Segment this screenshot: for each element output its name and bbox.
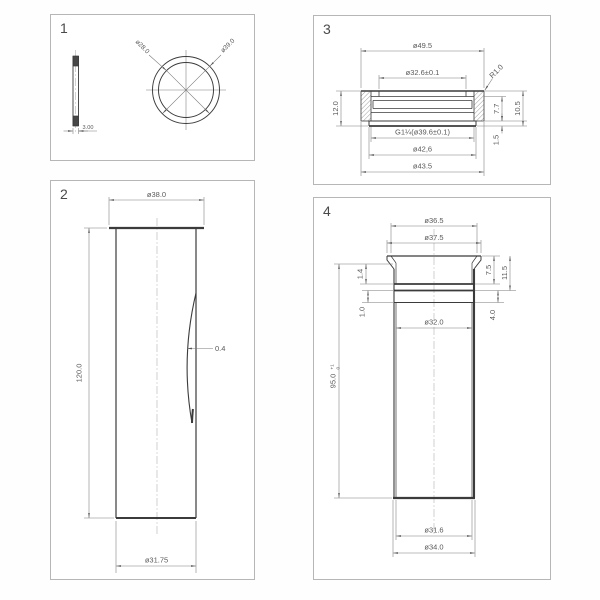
dim-flange-bore: ø32.6±0.1 (406, 68, 440, 77)
dim-tailpiece-rim-depth: 7.5 (484, 265, 493, 275)
panel-1-gasket: 1 3.00 (50, 14, 255, 161)
dim-flange-skirt-diameter: ø42,6 (413, 145, 432, 154)
tailpiece-length-dimension: 95.0 +1 0 (329, 264, 393, 498)
panel-4-drawing: ø36.5 ø37.5 7.5 11.5 4.0 1.4 1.0 (314, 198, 550, 579)
panel-3-number: 3 (323, 21, 331, 37)
tailpiece-bottom-dimensions: ø31.6 ø34.0 (393, 500, 475, 557)
dim-tailpiece-length: 95.0 (329, 374, 338, 389)
tailpiece-left-dimensions: 1.4 1.0 (334, 264, 393, 317)
dim-tailpiece-bore: ø32.0 (424, 318, 443, 327)
flange-bore-dimension: ø32.6±0.1 (379, 68, 466, 89)
dim-tailpiece-bottom-outer: ø34.0 (424, 543, 443, 552)
flange-bottom-dimensions: G1¼(ø39.6±0.1) ø42,6 ø43.5 (361, 122, 484, 176)
dim-tailpiece-top-outer: ø37.5 (424, 233, 443, 242)
gasket-thickness-dimension: 3.00 (64, 125, 98, 134)
dim-tailpiece-length-tol-upper: +1 (330, 364, 335, 370)
gasket-side-view (73, 50, 79, 132)
dim-tailpiece-bottom-inner: ø31.6 (424, 526, 443, 535)
drawing-sheet: 1 3.00 (0, 0, 600, 600)
tube-outline (109, 218, 204, 535)
dim-flange-outer-height: 10.5 (513, 101, 522, 116)
dim-tailpiece-length-tol-lower: 0 (335, 367, 340, 370)
panel-2-drawing: ø38.0 120.0 0.4 ø31.75 (51, 181, 254, 579)
tube-wall-dimension: 0.4 (187, 344, 225, 353)
gasket-diameter-dimensions: ø28.0 ø39.0 (134, 37, 237, 113)
dim-tube-wall-offset: 0.4 (215, 344, 225, 353)
panel-3-flange-nut: 3 (313, 15, 551, 185)
dim-tailpiece-step-width: 1.0 (358, 307, 367, 317)
dim-tailpiece-head-depth: 11.5 (500, 266, 509, 280)
tube-length-dimension: 120.0 (75, 228, 115, 518)
dim-tailpiece-top-inner: ø36.5 (424, 216, 443, 225)
dim-tailpiece-groove-width: 1.4 (356, 269, 365, 279)
dim-tube-top-diameter: ø38.0 (147, 190, 166, 199)
flange-section-outline (361, 91, 484, 126)
dim-flange-lip-height: 1.5 (492, 135, 501, 145)
panel-1-number: 1 (60, 20, 68, 36)
panel-4-tailpiece: 4 ø36.5 (313, 197, 551, 580)
flange-right-dimensions: 7.7 10.5 1.5 (477, 91, 527, 145)
flange-left-wall-hatch (361, 91, 371, 121)
flange-diameter-dimension: ø49.5 (361, 41, 484, 88)
flange-radius-dimension: R1.0 (485, 62, 505, 90)
panel-4-number: 4 (323, 203, 331, 219)
dim-flange-base-diameter: ø43.5 (413, 162, 432, 171)
panel-2-number: 2 (60, 186, 68, 202)
tailpiece-outline (387, 229, 481, 534)
tube-top-diameter-dimension: ø38.0 (109, 190, 204, 225)
tube-bottom-diameter-dimension: ø31.75 (116, 521, 196, 573)
dim-flange-total-height: 12.0 (331, 101, 340, 116)
tube-wall-arc (187, 293, 196, 423)
dim-flange-radius: R1.0 (487, 62, 505, 80)
flange-right-wall-hatch (474, 91, 484, 121)
panel-2-tube: 2 ø38.0 (50, 180, 255, 580)
dim-tube-bottom-diameter: ø31.75 (145, 556, 168, 565)
panel-1-drawing: 3.00 ø28.0 ø39.0 (51, 15, 254, 160)
dim-flange-inner-height: 7.7 (492, 104, 501, 114)
dim-gasket-thickness: 3.00 (83, 125, 94, 131)
dim-tailpiece-band-height: 4.0 (488, 310, 497, 320)
panel-3-drawing: ø49.5 ø32.6±0.1 R1.0 12.0 7.7 (314, 16, 550, 184)
dim-flange-diameter: ø49.5 (413, 41, 432, 50)
tailpiece-bore-dimension: ø32.0 (396, 318, 472, 329)
dim-tube-length: 120.0 (75, 364, 84, 383)
tailpiece-right-dimensions: 7.5 11.5 4.0 (475, 256, 516, 320)
dim-gasket-inner-diameter: ø28.0 (134, 39, 151, 56)
dim-flange-thread: G1¼(ø39.6±0.1) (395, 128, 450, 137)
dim-gasket-outer-diameter: ø39.0 (220, 37, 237, 54)
